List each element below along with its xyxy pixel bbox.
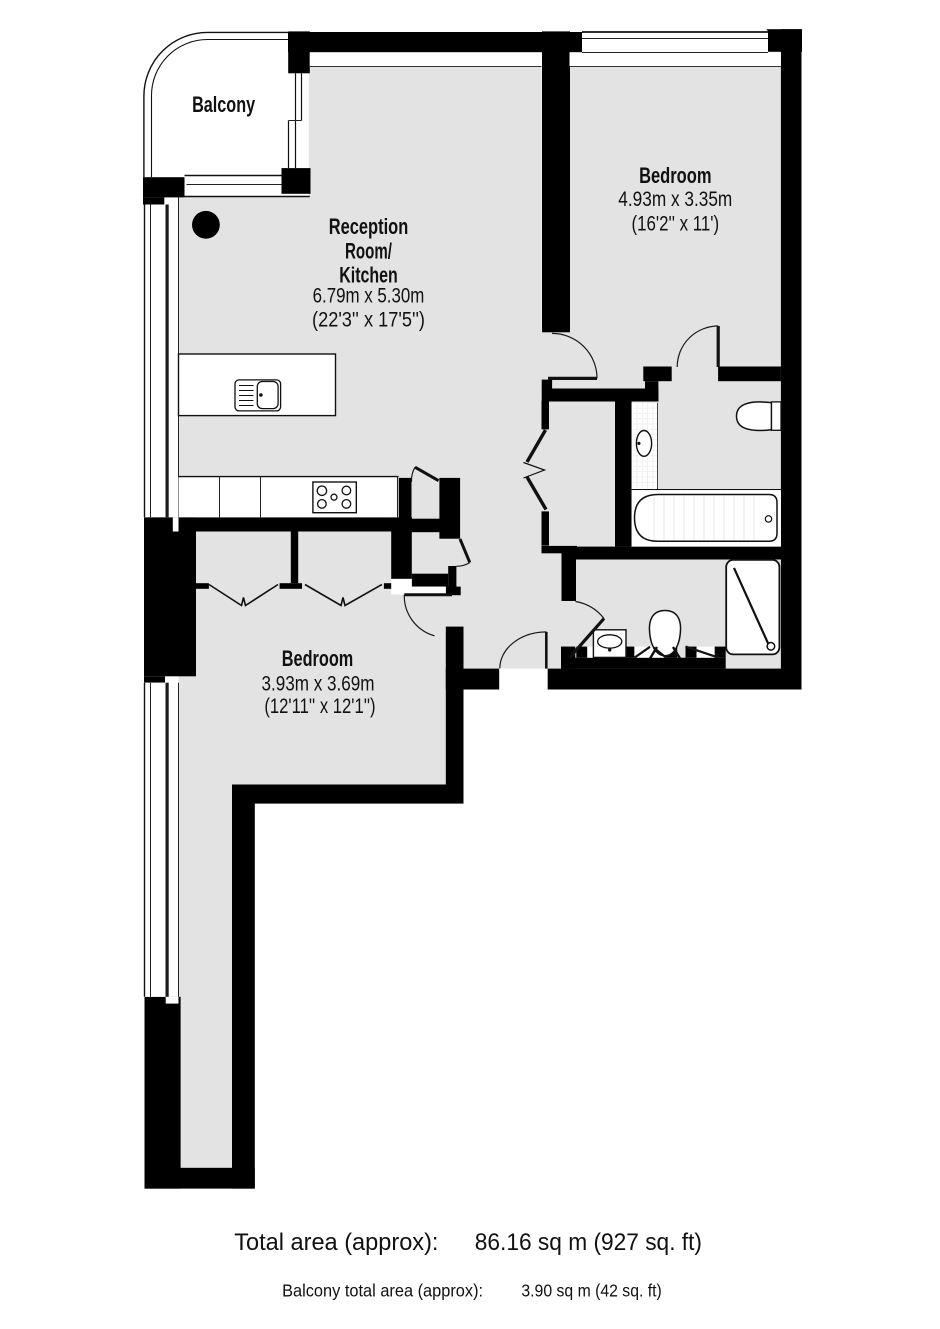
svg-text:(16'2'' x 11'): (16'2'' x 11') [631,213,719,236]
svg-text:Balcony: Balcony [192,92,256,117]
svg-text:Total area (approx):: Total area (approx): [234,1229,438,1256]
svg-text:Bedroom: Bedroom [282,646,354,671]
svg-text:4.93m x 3.35m: 4.93m x 3.35m [618,188,732,211]
svg-text:3.93m x 3.69m: 3.93m x 3.69m [261,673,374,696]
svg-text:Reception: Reception [329,214,409,239]
svg-text:Balcony total area (approx):: Balcony total area (approx): [282,1281,483,1301]
svg-text:Room/: Room/ [345,239,392,264]
svg-text:6.79m x 5.30m: 6.79m x 5.30m [313,285,425,308]
svg-text:(12'11'' x 12'1''): (12'11'' x 12'1'') [264,695,375,718]
svg-text:Bedroom: Bedroom [639,163,711,188]
svg-text:3.90 sq m (42 sq. ft): 3.90 sq m (42 sq. ft) [521,1281,661,1301]
svg-text:Kitchen: Kitchen [339,262,398,287]
svg-text:86.16 sq m (927 sq. ft): 86.16 sq m (927 sq. ft) [475,1229,702,1256]
svg-text:(22'3'' x 17'5''): (22'3'' x 17'5'') [312,309,425,332]
